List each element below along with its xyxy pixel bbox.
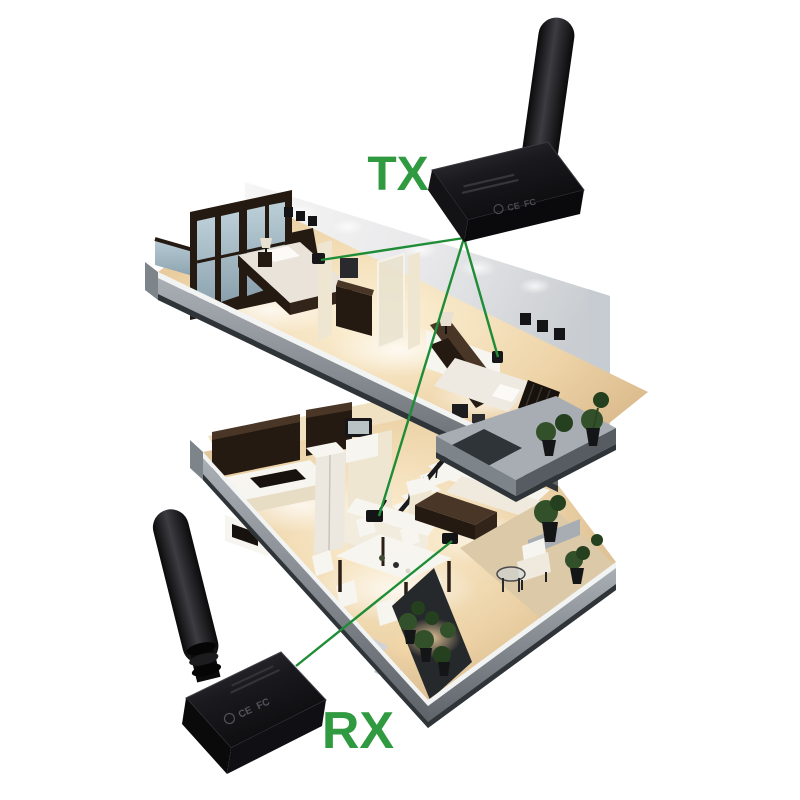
shower-glass — [378, 254, 404, 348]
wall-picture — [537, 320, 548, 332]
wall-picture — [308, 216, 317, 226]
rx-label: RX — [322, 702, 395, 760]
tx-device: CE FC TX — [367, 15, 584, 242]
wall-picture — [554, 328, 565, 340]
wall-picture — [296, 211, 305, 221]
product-diagram: CE FC TX CE FC RX — [0, 0, 800, 800]
wall-picture — [520, 313, 531, 325]
tx-body: CE FC — [428, 142, 584, 242]
scene-canvas: CE FC TX CE FC RX — [0, 0, 800, 800]
tx-label: TX — [367, 148, 428, 201]
rx-antenna-icon — [149, 505, 226, 684]
wall-picture — [284, 207, 293, 217]
